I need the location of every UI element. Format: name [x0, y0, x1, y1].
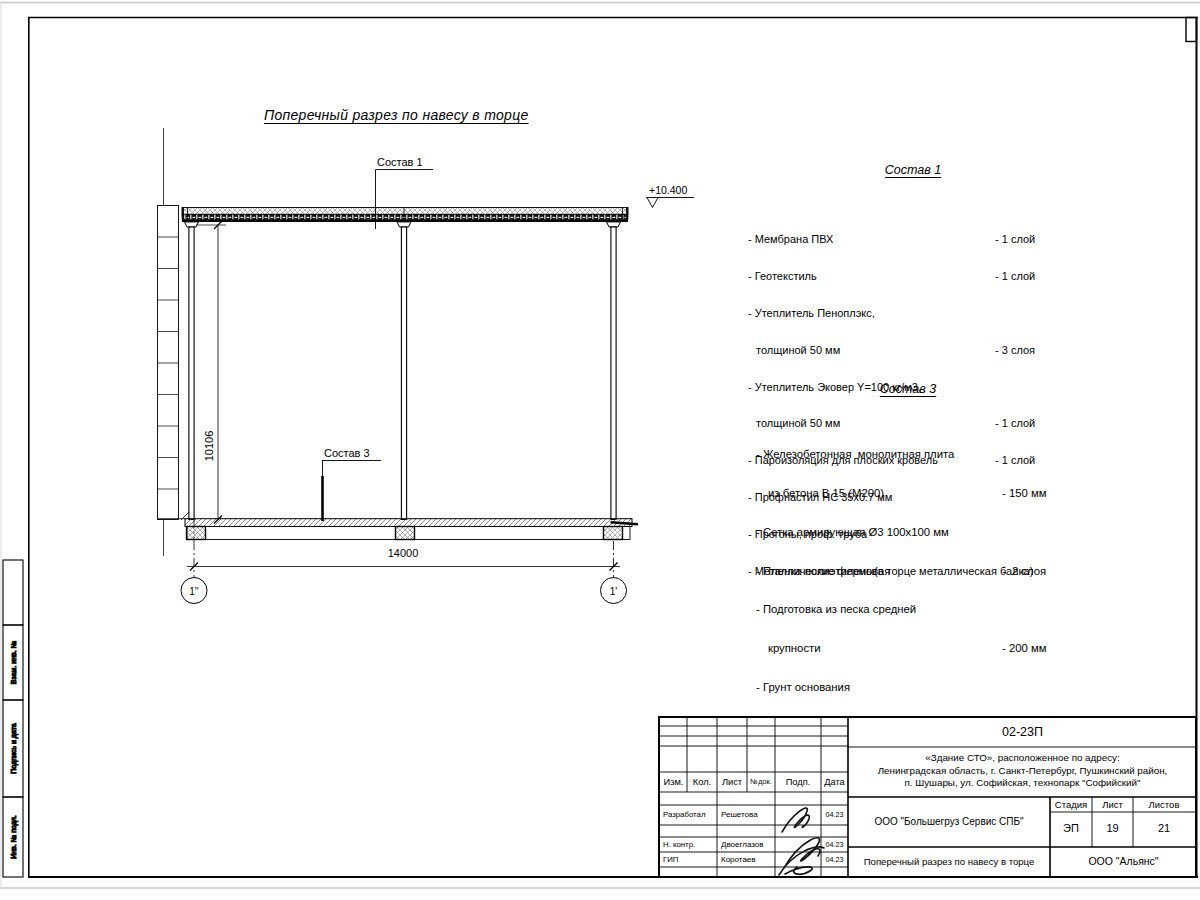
foundation-left: [187, 527, 206, 540]
stamp-date: 04.23: [821, 852, 848, 867]
item-value: - 1 слой: [995, 233, 1035, 246]
project-line: Ленинградская область, г. Санкт-Петербур…: [848, 765, 1197, 778]
stamp-role: ГИП: [663, 852, 717, 867]
list-item: - Грунт основания: [756, 680, 1106, 695]
sheet-title: Поперечный разрез по навесу в торце: [848, 847, 1050, 876]
title-block: Изм. Кол. Лист №док. Подп. Дата Разработ…: [658, 716, 1197, 878]
adjacent-wall: [158, 128, 179, 556]
item-value: - 3 слоя: [995, 344, 1035, 357]
list-item: - Утеплитель Пеноплэкс,: [748, 307, 1098, 320]
column-middle-cap: [397, 222, 411, 227]
stage-label: Стадия: [1050, 797, 1092, 812]
item-name: - Сетка армирующая Ø3 100х100 мм: [756, 526, 949, 538]
ground-slab: [158, 512, 639, 540]
stamp-date: 04.23: [821, 837, 848, 852]
sheets-total: 21: [1133, 812, 1195, 847]
list-item: - Подготовка из песка средней: [756, 602, 1106, 617]
leader-sostav3: Состав 3: [322, 447, 381, 521]
stamp-person: Коротаев: [721, 852, 775, 867]
item-name: - Железобетонная монолитная плита: [756, 448, 954, 460]
item-name: - Мембрана ПВХ: [748, 233, 833, 245]
list-item: - Железобетонная монолитная плита: [756, 447, 1106, 462]
signature-razrabotal: [782, 808, 809, 832]
column-left-cap: [185, 222, 199, 227]
stage-value: ЭП: [1050, 812, 1092, 847]
roof-assembly: [182, 208, 628, 222]
stamp-date: 04.23: [821, 805, 848, 825]
item-value: - 200 мм: [1002, 641, 1046, 656]
dim-height: 10106: [196, 221, 226, 524]
item-value: - 150 мм: [1002, 486, 1046, 501]
project-description: «Здание СТО», расположенное по адресу: Л…: [848, 747, 1197, 797]
list-item: - Геотекстиль- 1 слой: [748, 270, 1098, 283]
dim-width-value: 14000: [388, 547, 419, 559]
margin-boxes: Взам. инв. № Подпись и дата Инв. № подл.: [3, 560, 23, 877]
item-name: - Геотекстиль: [748, 270, 817, 282]
item-name: - Утеплитель Пеноплэкс,: [748, 307, 875, 319]
margin-label-podpis: Подпись и дата: [10, 723, 18, 773]
sheet-label: Лист: [1092, 797, 1133, 812]
foundation-middle: [396, 527, 415, 540]
list-item: толщиной 50 мм- 3 слоя: [748, 344, 1098, 357]
stamp-col-izm: Изм.: [660, 772, 687, 792]
margin-label-inv: Инв. № подл.: [10, 815, 18, 859]
document-number: 02-23П: [848, 718, 1197, 747]
foundation-right: [604, 527, 623, 540]
leader-sostav1-label: Состав 1: [377, 156, 423, 168]
elevation-mark: +10.400: [646, 184, 694, 208]
list-item: крупности- 200 мм: [756, 641, 1106, 656]
format-box: [1186, 18, 1197, 42]
columns: [185, 222, 621, 520]
list-item: - Мембрана ПВХ- 1 слой: [748, 233, 1098, 246]
contractor-org: ООО "Большегруз Сервис СПБ": [848, 797, 1050, 847]
item-name: толщиной 50 мм: [756, 344, 840, 356]
axis-label-right: 1': [610, 586, 618, 597]
list-item: - Пленка полиэтиленовая- 2 слоя: [756, 564, 1106, 579]
sostav3-list: - Железобетонная монолитная плита из бет…: [756, 423, 1106, 719]
stamp-person: Двоеглазов: [721, 837, 775, 852]
margin-label-vzam: Взам. инв. №: [10, 641, 17, 684]
column-middle: [401, 227, 406, 520]
item-name: - Пленка полиэтиленовая: [756, 565, 890, 577]
stamp-col-podp: Подп.: [775, 772, 821, 792]
project-line: «Здание СТО», расположенное по адресу:: [848, 752, 1197, 765]
project-line: п. Шушары, ул. Софийская, технопарк "Соф…: [848, 777, 1197, 790]
stamp-role: Н. контр.: [663, 837, 717, 852]
stamp-role: Разработал: [663, 805, 717, 825]
item-name: крупности: [768, 642, 821, 654]
signatures: [779, 808, 824, 875]
design-company: ООО "Альянс": [1050, 847, 1197, 876]
elevation-value: +10.400: [649, 184, 687, 196]
axis-label-left: 1'': [189, 586, 198, 597]
item-value: - 2 слоя: [1002, 564, 1046, 579]
item-name: из бетона В 15 (М200): [768, 487, 884, 499]
stamp-person: Решетова: [721, 805, 775, 825]
column-left: [189, 227, 194, 520]
item-name: - Грунт основания: [756, 681, 850, 693]
stamp-col-ndok: №док.: [747, 772, 775, 792]
item-name: - Подготовка из песка средней: [756, 603, 916, 615]
sostav1-title: Состав 1: [858, 163, 968, 177]
leader-sostav3-label: Состав 3: [324, 447, 370, 459]
list-item: из бетона В 15 (М200)- 150 мм: [756, 486, 1106, 501]
stamp-col-list: Лист: [717, 772, 747, 792]
signature-nkontr-gip: [779, 838, 824, 875]
stamp-col-data: Дата: [821, 772, 848, 792]
column-right-cap: [607, 222, 621, 227]
list-item: - Сетка армирующая Ø3 100х100 мм: [756, 525, 1106, 540]
dim-height-value: 10106: [203, 431, 215, 462]
sheet-number: 19: [1092, 812, 1133, 847]
sostav3-title: Состав 3: [853, 382, 963, 396]
drawing-sheet: Взам. инв. № Подпись и дата Инв. № подл.: [0, 0, 1200, 900]
sheets-label: Листов: [1133, 797, 1195, 812]
column-right: [611, 227, 616, 520]
item-value: - 1 слой: [995, 270, 1035, 283]
drawing-title: Поперечный разрез по навесу в торце: [264, 107, 529, 123]
stamp-col-kol: Кол.: [687, 772, 717, 792]
